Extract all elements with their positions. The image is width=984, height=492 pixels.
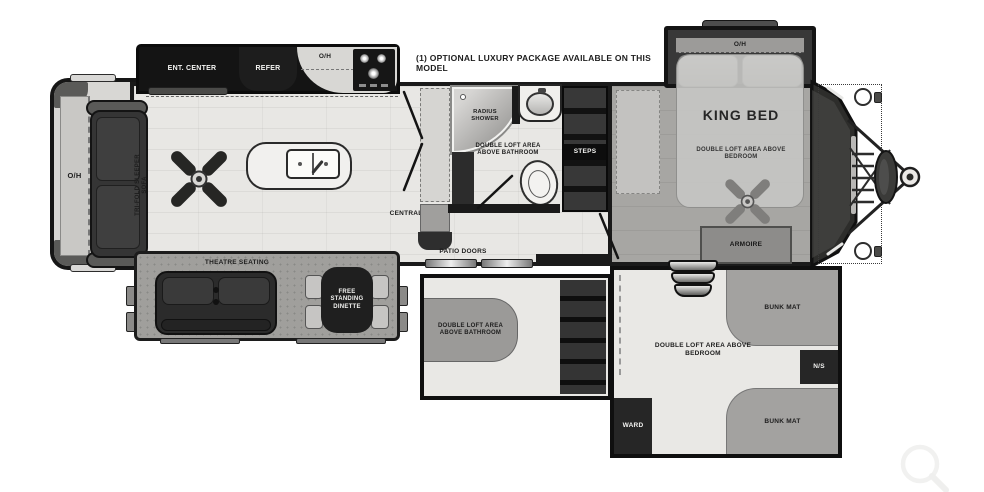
dinette-chair [371,275,389,299]
king-bed: KING BED DOUBLE LOFT AREA ABOVE BEDROOM [676,54,804,208]
cup-holder [213,299,219,305]
entertainment-center: ENT. CENTER [145,47,239,91]
refrigerator: REFER [239,47,297,91]
wardrobe-label: WARD [623,422,644,430]
stove [353,49,395,91]
wardrobe: WARD [614,398,652,454]
entry-step [674,284,712,297]
bathroom-loft-inset-label: DOUBLE LOFT AREA ABOVE BATHROOM [431,323,511,337]
rear-overhead-cabinet: O/H [60,96,90,256]
king-bed-label: KING BED [677,107,805,124]
bathroom-bottom-wall [448,204,560,213]
oven-burner [368,68,379,79]
steps-label-band: STEPS [564,144,606,160]
jack-foot [874,92,882,103]
rear-window-top [70,74,116,82]
kitchen-sink [286,149,340,179]
bathroom-loft-inset: DOUBLE LOFT AREA ABOVE BATHROOM [420,274,612,400]
overhead-dashed-line [146,96,398,97]
stove-control [370,84,377,87]
dinette-chair [371,305,389,329]
bedroom-loft-inset-label: DOUBLE LOFT AREA ABOVE BEDROOM [648,342,758,357]
stove-control [381,84,388,87]
patio-door-panel [425,259,477,268]
theatre-seat-back [218,277,270,305]
slideout-bottom-rail [296,338,386,344]
refrigerator-label: REFER [256,65,281,73]
bedroom-steps: STEPS [562,86,608,212]
optional-package-note: (1) OPTIONAL LUXURY PACKAGE AVAILABLE ON… [416,53,682,73]
radius-shower-label: RADIUS SHOWER [462,109,508,123]
bath-divider-wall [452,152,474,210]
bathroom-sink [526,92,554,116]
steps-label: STEPS [574,148,597,156]
rear-overhead-label: O/H [67,172,81,181]
free-standing-dinette-table: FREE STANDING DINETTE [321,267,373,333]
theatre-seating [155,271,277,335]
cup-holder [213,287,219,293]
bed-overhead-cabinet: O/H [676,38,804,53]
toilet-bowl [526,168,553,200]
bunk-mat-top: BUNK MAT [726,270,838,346]
entry-steps [660,260,724,302]
sofa-label: TRI-FOLD SLEEPER SOFA [135,149,153,221]
patio-doors-label: PATIO DOORS [432,248,494,256]
kitchen-overhead-label: O/H [303,53,347,61]
magnifier-icon[interactable] [896,440,952,492]
entry-step [668,260,718,272]
bathroom-vanity [518,84,562,122]
armoire-label: ARMOIRE [730,241,762,249]
theatre-seat-back [162,277,214,305]
shower-head-icon [460,94,466,100]
burner [360,54,369,63]
bunk-mat-bottom: BUNK MAT [726,388,838,454]
dinette-label: FREE STANDING DINETTE [324,289,370,310]
nightstand-label: N/S [813,363,825,371]
bathroom-loft-label: DOUBLE LOFT AREA ABOVE BATHROOM [466,143,550,157]
stove-control [359,84,366,87]
pantry-base-cabinet [420,204,450,232]
landing-jack [854,88,872,106]
pantry [420,88,450,202]
nightstand: N/S [800,350,838,384]
bunk-mat-bottom-label: BUNK MAT [758,418,808,426]
armoire: ARMOIRE [700,226,792,264]
loft-ladder-steps [560,280,606,394]
bedroom-loft-inset: BUNK MAT N/S BUNK MAT WARD DOUBLE LOFT A… [610,266,842,458]
hitch-icon [838,108,984,248]
living-slideout: THEATRE SEATING FREE STANDING DINETTE [134,251,400,341]
burner [377,54,386,63]
tv-bar [148,87,228,95]
bedroom-loft-label: DOUBLE LOFT AREA ABOVE BEDROOM [696,147,786,161]
bed-overhead-label: O/H [734,41,746,49]
theatre-footrest [161,319,271,331]
sink-drain [298,162,302,166]
entry-step [671,272,715,284]
sofa-cushion [96,185,140,249]
bottom-wall-segment [536,254,610,266]
sink-drain [324,162,328,166]
slideout-bottom-rail [160,338,240,344]
loft-edge-dashed-line [619,275,621,375]
theatre-seating-label: THEATRE SEATING [167,259,307,267]
bathroom-faucet [538,88,546,93]
kitchen-counter: O/H [297,47,397,93]
sofa-cushion [96,117,140,181]
bunk-mat-top-label: BUNK MAT [758,304,808,312]
entertainment-center-label: ENT. CENTER [168,65,217,73]
patio-door-panel [481,259,533,268]
rv-floorplan: (1) OPTIONAL LUXURY PACKAGE AVAILABLE ON… [0,0,984,492]
bedroom-closet [616,90,660,194]
bathroom-loft-mat: DOUBLE LOFT AREA ABOVE BATHROOM [424,298,518,362]
